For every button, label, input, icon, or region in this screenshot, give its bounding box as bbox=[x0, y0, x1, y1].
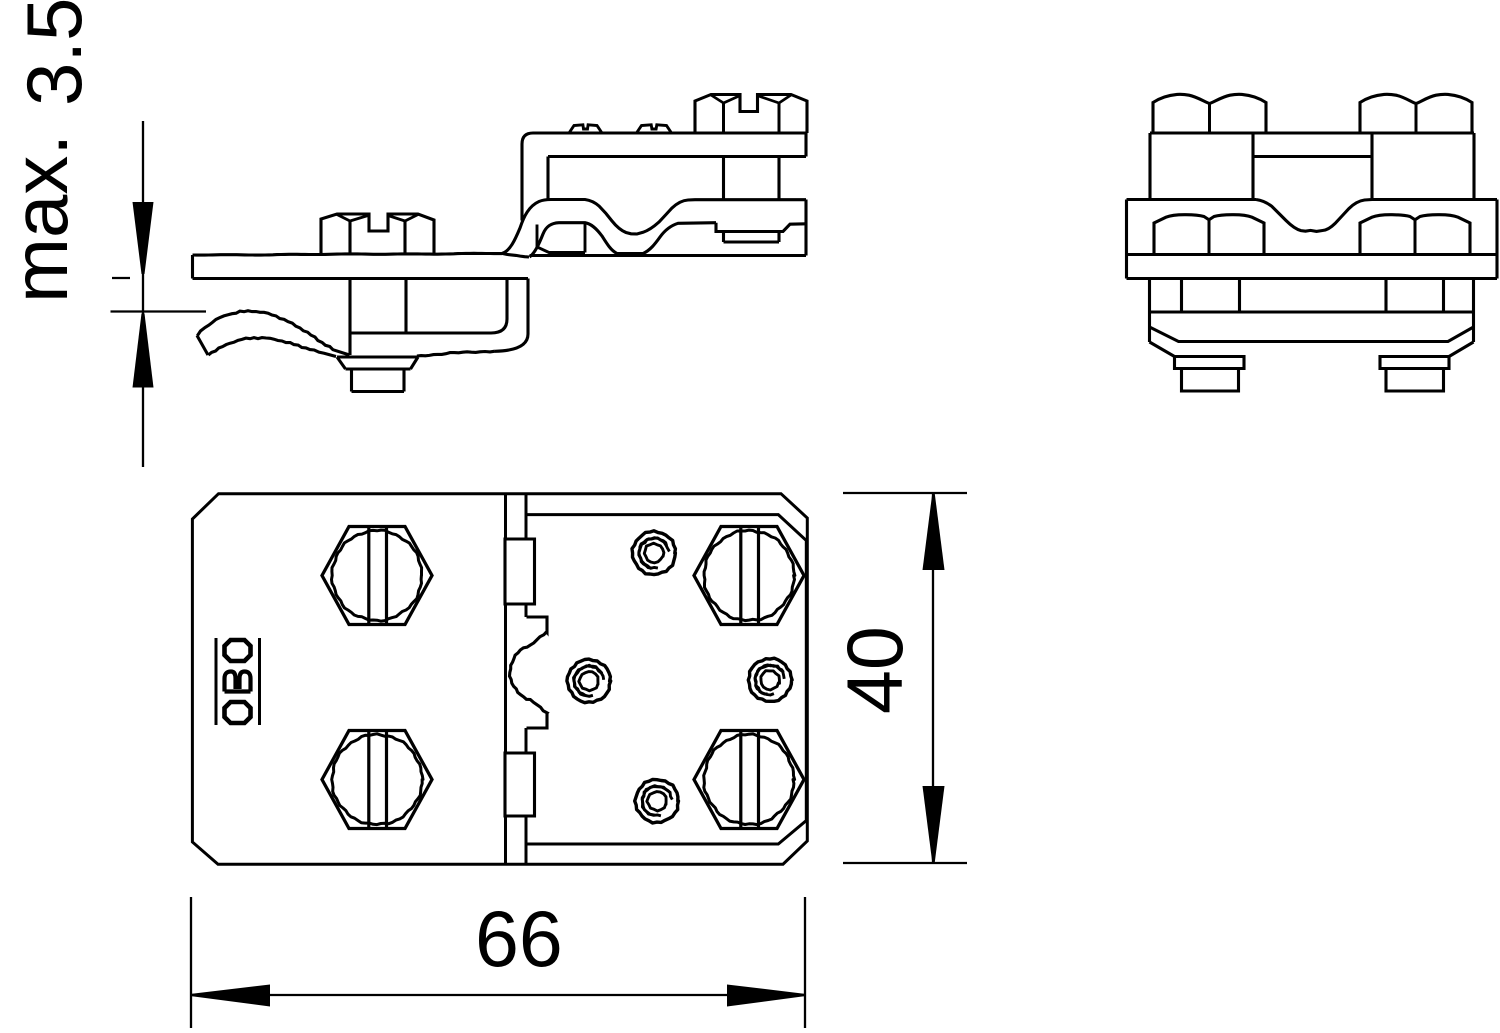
svg-text:3.5: 3.5 bbox=[10, 0, 98, 106]
svg-text:66: 66 bbox=[475, 894, 563, 983]
svg-text:max.: max. bbox=[0, 134, 84, 303]
svg-text:40: 40 bbox=[830, 626, 919, 714]
